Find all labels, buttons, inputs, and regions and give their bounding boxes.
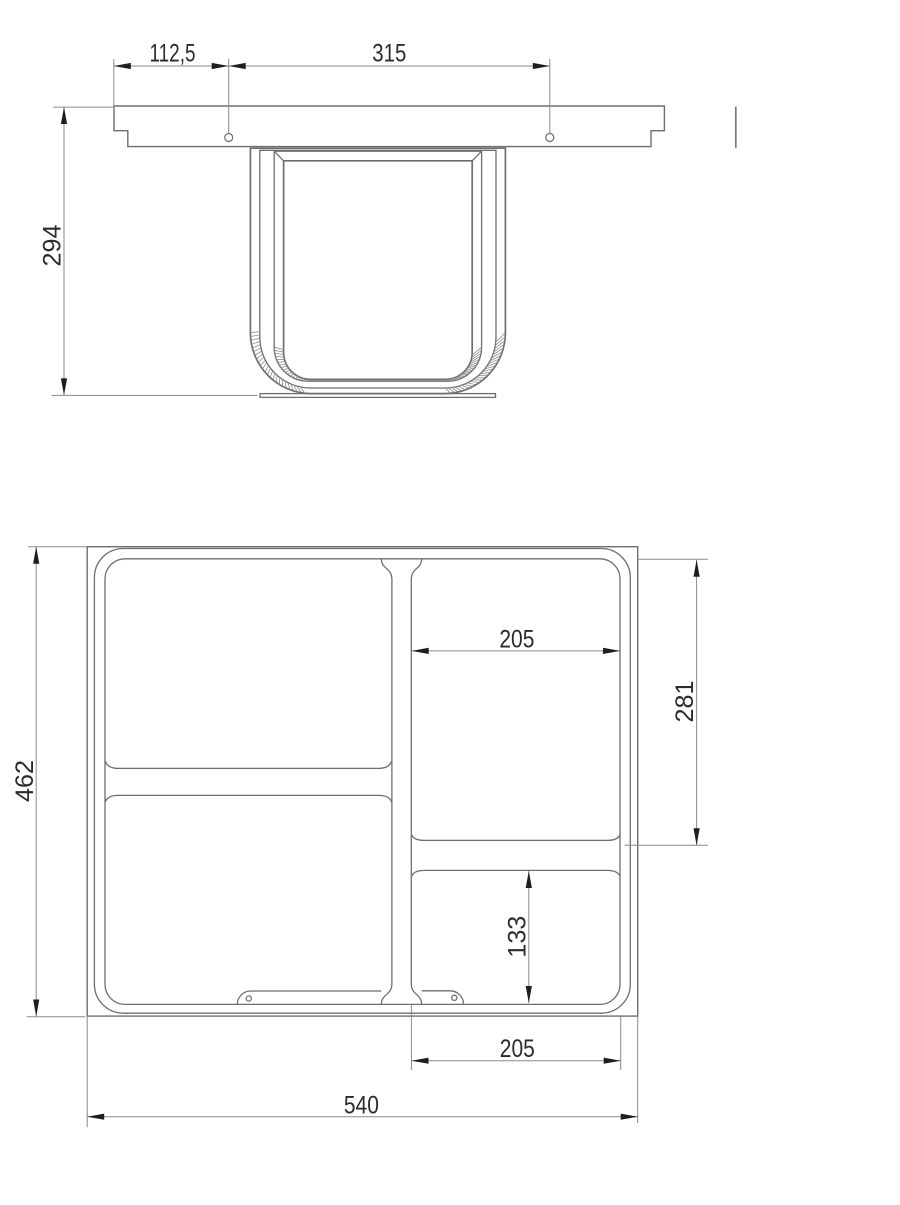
svg-text:205: 205 xyxy=(500,1035,535,1063)
svg-text:540: 540 xyxy=(344,1091,379,1119)
svg-text:281: 281 xyxy=(671,681,699,723)
svg-text:294: 294 xyxy=(38,224,66,266)
svg-text:205: 205 xyxy=(499,625,534,653)
svg-text:315: 315 xyxy=(372,39,406,67)
svg-text:133: 133 xyxy=(503,916,531,958)
svg-text:462: 462 xyxy=(11,760,39,802)
svg-text:112,5: 112,5 xyxy=(150,39,196,67)
